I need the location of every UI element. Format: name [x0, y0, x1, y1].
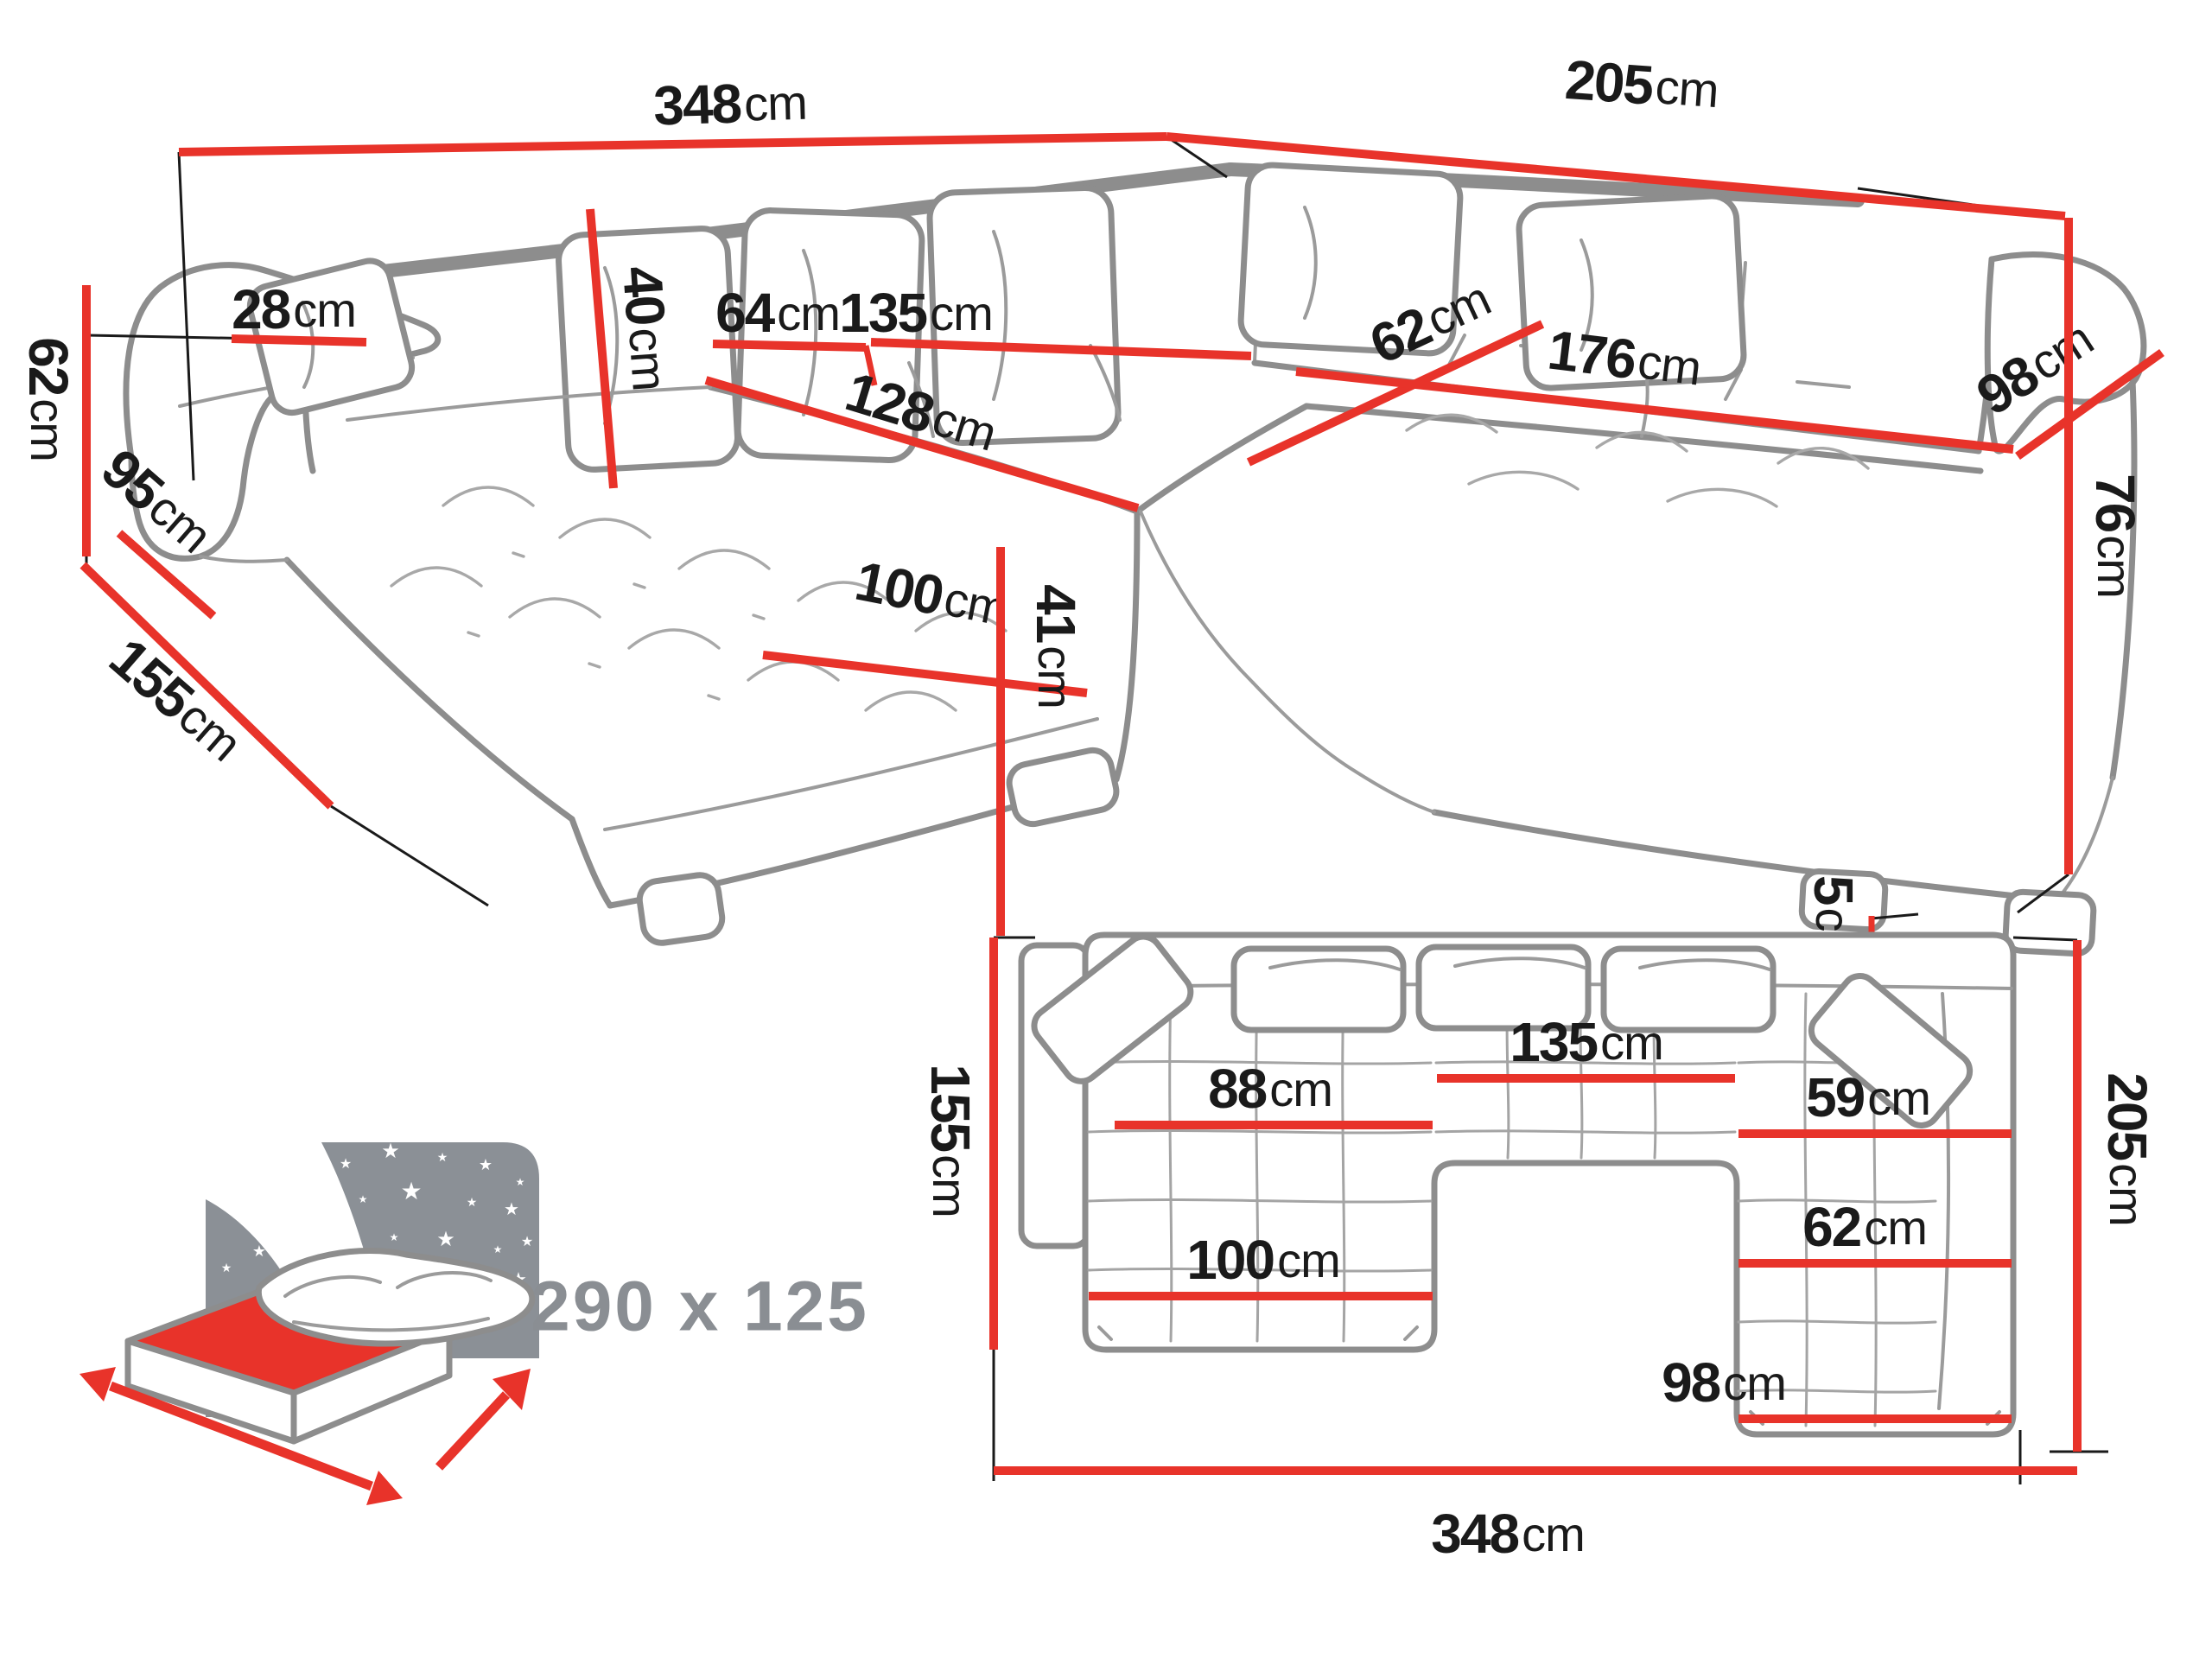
dim-label-205: 205cm — [1563, 48, 1720, 121]
dim-back-width: 348cm — [179, 71, 1166, 152]
dim-label-28: 28cm — [232, 278, 356, 340]
plan-label-62: 62cm — [1802, 1196, 1927, 1258]
star-icon: ★ — [334, 1221, 350, 1242]
star-icon: ★ — [390, 1231, 399, 1243]
plan-label-205: 205cm — [2096, 1072, 2158, 1225]
star-icon: ★ — [493, 1243, 503, 1255]
dim-label-155: 155cm — [98, 626, 254, 774]
depth-arrow — [439, 1369, 531, 1467]
corner-seat-front — [1137, 406, 1306, 512]
plan-sofa-drawing — [1021, 930, 2013, 1434]
chaise-front-corner — [572, 819, 610, 906]
plan-dim-chaise-depth: 155cm — [919, 938, 994, 1350]
plan-label-100: 100cm — [1186, 1229, 1339, 1291]
chaise-left-edge — [287, 560, 572, 819]
perspective-view: 348cm 205cm 62cm 155cm 95cm 28cm 40cm — [17, 48, 2162, 970]
plan-label-59: 59cm — [1806, 1066, 1930, 1128]
star-icon: ★ — [221, 1262, 232, 1275]
chaise-right-edge — [1116, 512, 1137, 779]
inner-corner-1 — [1141, 512, 1253, 683]
dim-label-64: 64cm — [715, 282, 840, 344]
star-icon: ★ — [381, 1139, 400, 1163]
dim-label-100: 100cm — [850, 550, 1013, 640]
dim-line-64 — [713, 344, 866, 347]
plan-dim-total-width: 348cm — [994, 1471, 2077, 1565]
armrest-to-chaise — [200, 556, 287, 562]
star-icon: ★ — [252, 1243, 266, 1261]
star-icon: ★ — [400, 1177, 422, 1205]
star-icon: ★ — [521, 1233, 533, 1249]
star-icon: ★ — [340, 1155, 352, 1172]
plan-label-155: 155cm — [919, 1064, 982, 1217]
sofa-perspective-drawing — [126, 164, 2144, 955]
dim-label-76: 76cm — [2084, 474, 2146, 598]
dim-label-41: 41cm — [1025, 584, 1087, 709]
inner-corner-2 — [1253, 683, 1346, 766]
chaise-foot-1 — [637, 873, 724, 945]
plan-label-348: 348cm — [1431, 1503, 1584, 1565]
star-icon: ★ — [516, 1176, 525, 1188]
dim-label-135: 135cm — [839, 282, 992, 344]
star-icon: ★ — [359, 1193, 368, 1205]
sleeping-size-label: 290 x 125 — [531, 1268, 869, 1346]
plan-label-88: 88cm — [1208, 1058, 1332, 1120]
dim-label-62-left: 62cm — [17, 337, 79, 461]
right-front-left-slant — [1346, 766, 1434, 812]
star-icon: ★ — [437, 1151, 448, 1165]
bed-icon: ★★★★★★★★★★★★★★★★★★★★★★★★★★★★ 290 x 125 — [79, 1139, 869, 1505]
star-icon: ★ — [436, 1227, 455, 1251]
star-icon: ★ — [479, 1156, 493, 1174]
dim-chaise-total-depth: 155cm — [83, 565, 331, 806]
furniture-dimension-diagram: 348cm 205cm 62cm 155cm 95cm 28cm 40cm — [0, 0, 2212, 1659]
plan-label-98: 98cm — [1662, 1351, 1786, 1414]
dim-armrest-height: 62cm — [17, 285, 86, 556]
star-icon: ★ — [467, 1196, 478, 1210]
back-pillow-4 — [1240, 164, 1462, 355]
star-icon: ★ — [504, 1198, 519, 1219]
plan-view: 155cm 205cm 135cm 88cm 59cm 62cm 100cm — [919, 930, 2158, 1565]
right-front-bottom — [1434, 812, 2056, 900]
diagram-canvas: 348cm 205cm 62cm 155cm 95cm 28cm 40cm — [0, 0, 2212, 1659]
chaise-foot-2 — [1006, 747, 1120, 827]
plan-label-135: 135cm — [1510, 1011, 1662, 1073]
dim-line-348 — [179, 137, 1166, 152]
dim-armrest-top-width: 28cm — [232, 278, 366, 342]
plan-dim-total-depth: 205cm — [2077, 940, 2158, 1452]
dim-label-348: 348cm — [652, 71, 807, 137]
